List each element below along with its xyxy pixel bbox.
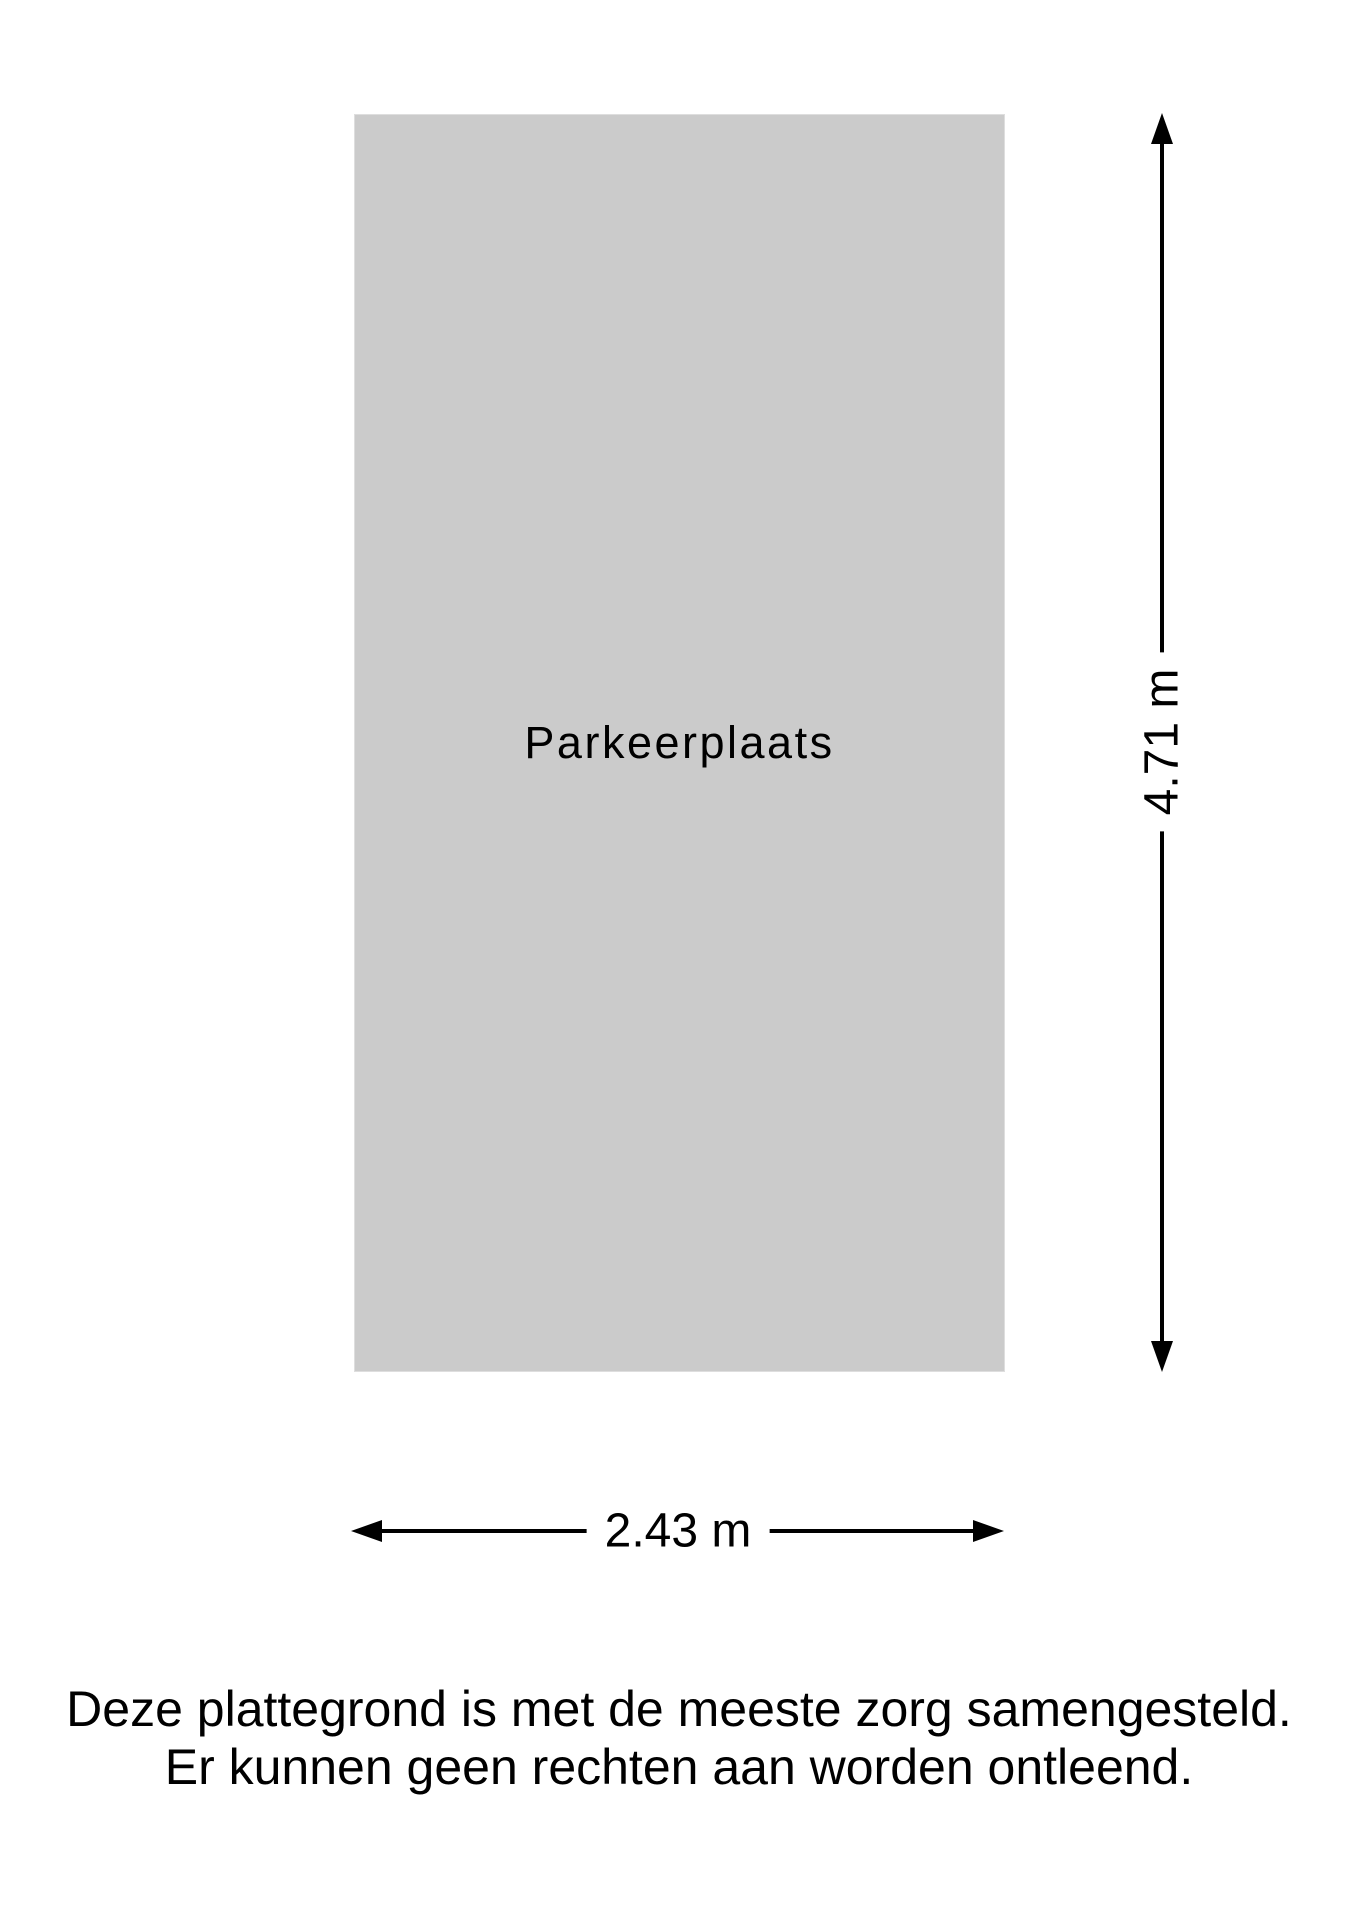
disclaimer-line-1: Deze plattegrond is met de meeste zorg s… (0, 1680, 1358, 1738)
parking-space-rect: Parkeerplaats (355, 115, 1004, 1371)
disclaimer: Deze plattegrond is met de meeste zorg s… (0, 1680, 1358, 1796)
arrow-left-icon (351, 1520, 382, 1542)
arrow-up-icon (1151, 113, 1173, 144)
arrow-down-icon (1151, 1341, 1173, 1372)
arrow-right-icon (973, 1520, 1004, 1542)
width-dimension-label: 2.43 m (587, 1502, 770, 1561)
disclaimer-line-2: Er kunnen geen rechten aan worden ontlee… (0, 1738, 1358, 1796)
height-dimension-label: 4.71 m (1131, 653, 1194, 832)
floorplan-page: Parkeerplaats 4.71 m 2.43 m Deze platteg… (0, 0, 1358, 1920)
room-label: Parkeerplaats (524, 717, 834, 769)
